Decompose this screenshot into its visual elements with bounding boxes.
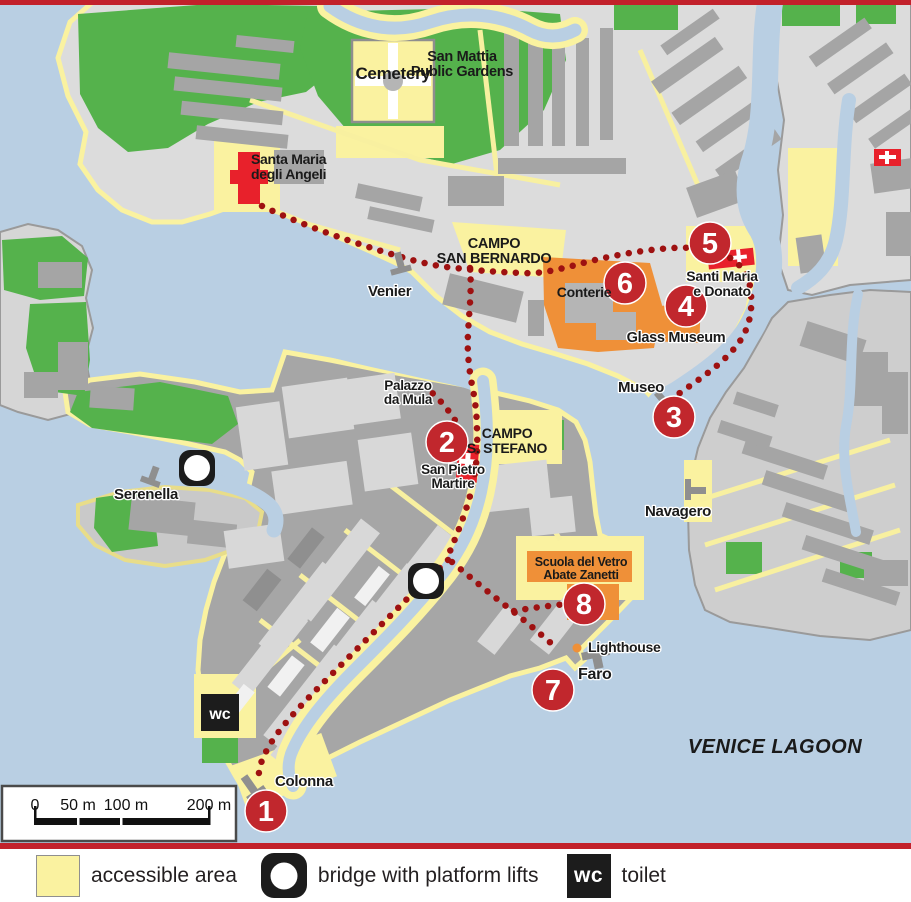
legend-label-accessible-area: accessible area — [91, 864, 237, 888]
wc-map-icon: wc — [201, 694, 239, 731]
map-label-serenella: Serenella — [114, 486, 179, 503]
map-label-palazzo-da-mula: Palazzoda Mula — [384, 378, 433, 407]
stop-number: 1 — [258, 796, 274, 828]
map-label-faro: Faro — [578, 666, 612, 683]
chapel-marker — [874, 149, 901, 166]
lighthouse-dot — [573, 644, 582, 653]
stop-number: 3 — [666, 402, 682, 434]
murano-accessible-map-page: wc 12345678 CemeterySan MattiaPublic Gar… — [0, 0, 911, 902]
map-label-museo: Museo — [618, 379, 664, 396]
stop-marker-5: 5 — [689, 222, 731, 264]
map-label-navagero: Navagero — [645, 503, 711, 520]
legend-label-bridge-lifts: bridge with platform lifts — [318, 864, 539, 888]
map-label-santa-maria-degli-angeli: Santa Mariadegli Angeli — [251, 151, 327, 182]
map-label-venier: Venier — [368, 283, 412, 300]
stop-number: 2 — [439, 427, 455, 459]
accessible-area-swatch — [36, 855, 80, 897]
stop-number: 6 — [617, 268, 633, 300]
map-label-lighthouse: Lighthouse — [588, 639, 661, 655]
legend-item-bridge-lifts: bridge with platform lifts — [261, 853, 539, 898]
stop-number: 8 — [576, 589, 592, 621]
bridge-lift-icon-vetrai — [408, 563, 444, 599]
stop-number: 5 — [702, 228, 718, 260]
bridge-lift-icon-serenella — [179, 450, 215, 486]
legend-item-toilet: wc toilet — [567, 854, 666, 898]
map-label-scuola-del-vetro: Scuola del VetroAbate Zanetti — [535, 555, 628, 582]
legend-item-accessible-area: accessible area — [36, 855, 237, 897]
stop-marker-3: 3 — [653, 396, 695, 438]
wc-icon: wc — [567, 854, 611, 898]
stop-marker-2: 2 — [426, 421, 468, 463]
stop-marker-8: 8 — [563, 583, 605, 625]
bridge-lift-icon — [261, 853, 307, 898]
map-label-conterie: Conterie — [557, 284, 612, 300]
stop-number: 7 — [545, 675, 561, 707]
map-label-santi-maria-e-donato: Santi Mariae Donato — [686, 268, 758, 299]
legend-bar: accessible area bridge with platform lif… — [0, 849, 911, 902]
legend-label-toilet: toilet — [622, 864, 666, 888]
stop-marker-1: 1 — [245, 790, 287, 832]
map-label-glass-museum: Glass Museum — [627, 330, 726, 346]
map-label-colonna: Colonna — [275, 773, 334, 790]
stop-marker-7: 7 — [532, 669, 574, 711]
scale-bar: 0 50 m 100 m 200 m — [2, 786, 236, 841]
stop-number: 4 — [678, 291, 694, 323]
top-border — [0, 0, 911, 5]
region-label: VENICE LAGOON — [688, 736, 862, 758]
map-canvas: wc 12345678 CemeterySan MattiaPublic Gar… — [0, 0, 911, 843]
wc-map-label: wc — [208, 706, 230, 723]
scale-100: 100 m — [104, 797, 148, 814]
